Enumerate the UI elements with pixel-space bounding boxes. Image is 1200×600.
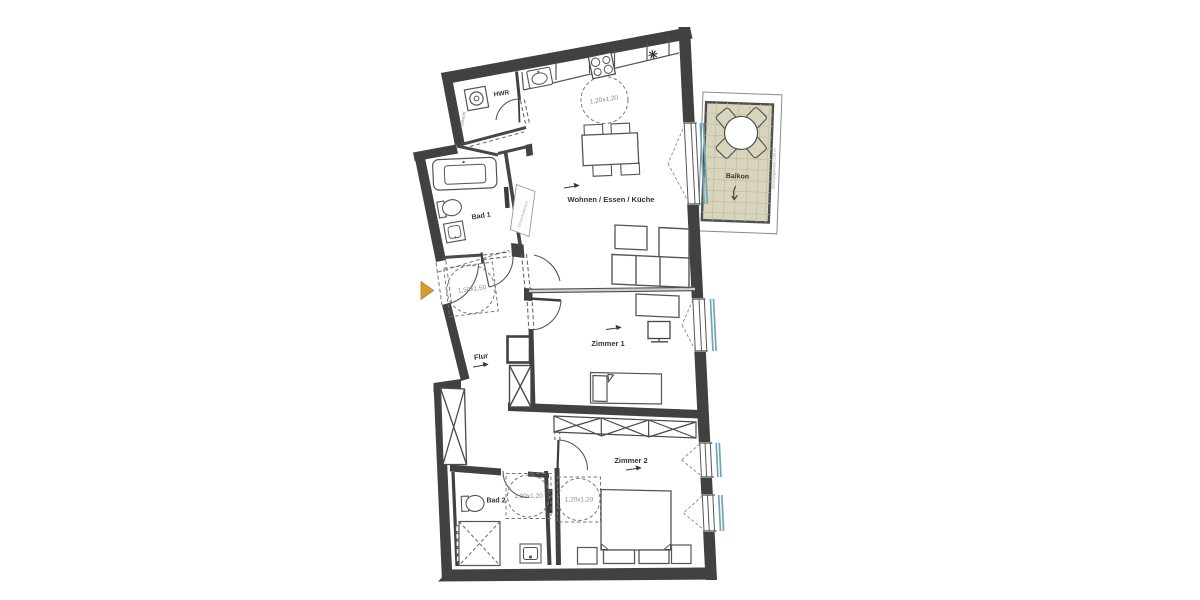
svg-text:Bad 2: Bad 2 bbox=[486, 498, 505, 505]
svg-text:Balkon: Balkon bbox=[726, 173, 750, 181]
svg-text:1,20x1,20: 1,20x1,20 bbox=[514, 493, 543, 500]
svg-text:Zimmer 1: Zimmer 1 bbox=[591, 339, 624, 348]
svg-text:1,20x1,20: 1,20x1,20 bbox=[565, 497, 594, 504]
svg-text:Wohnen / Essen / Küche: Wohnen / Essen / Küche bbox=[568, 195, 655, 204]
svg-text:Zimmer 2: Zimmer 2 bbox=[614, 456, 647, 465]
